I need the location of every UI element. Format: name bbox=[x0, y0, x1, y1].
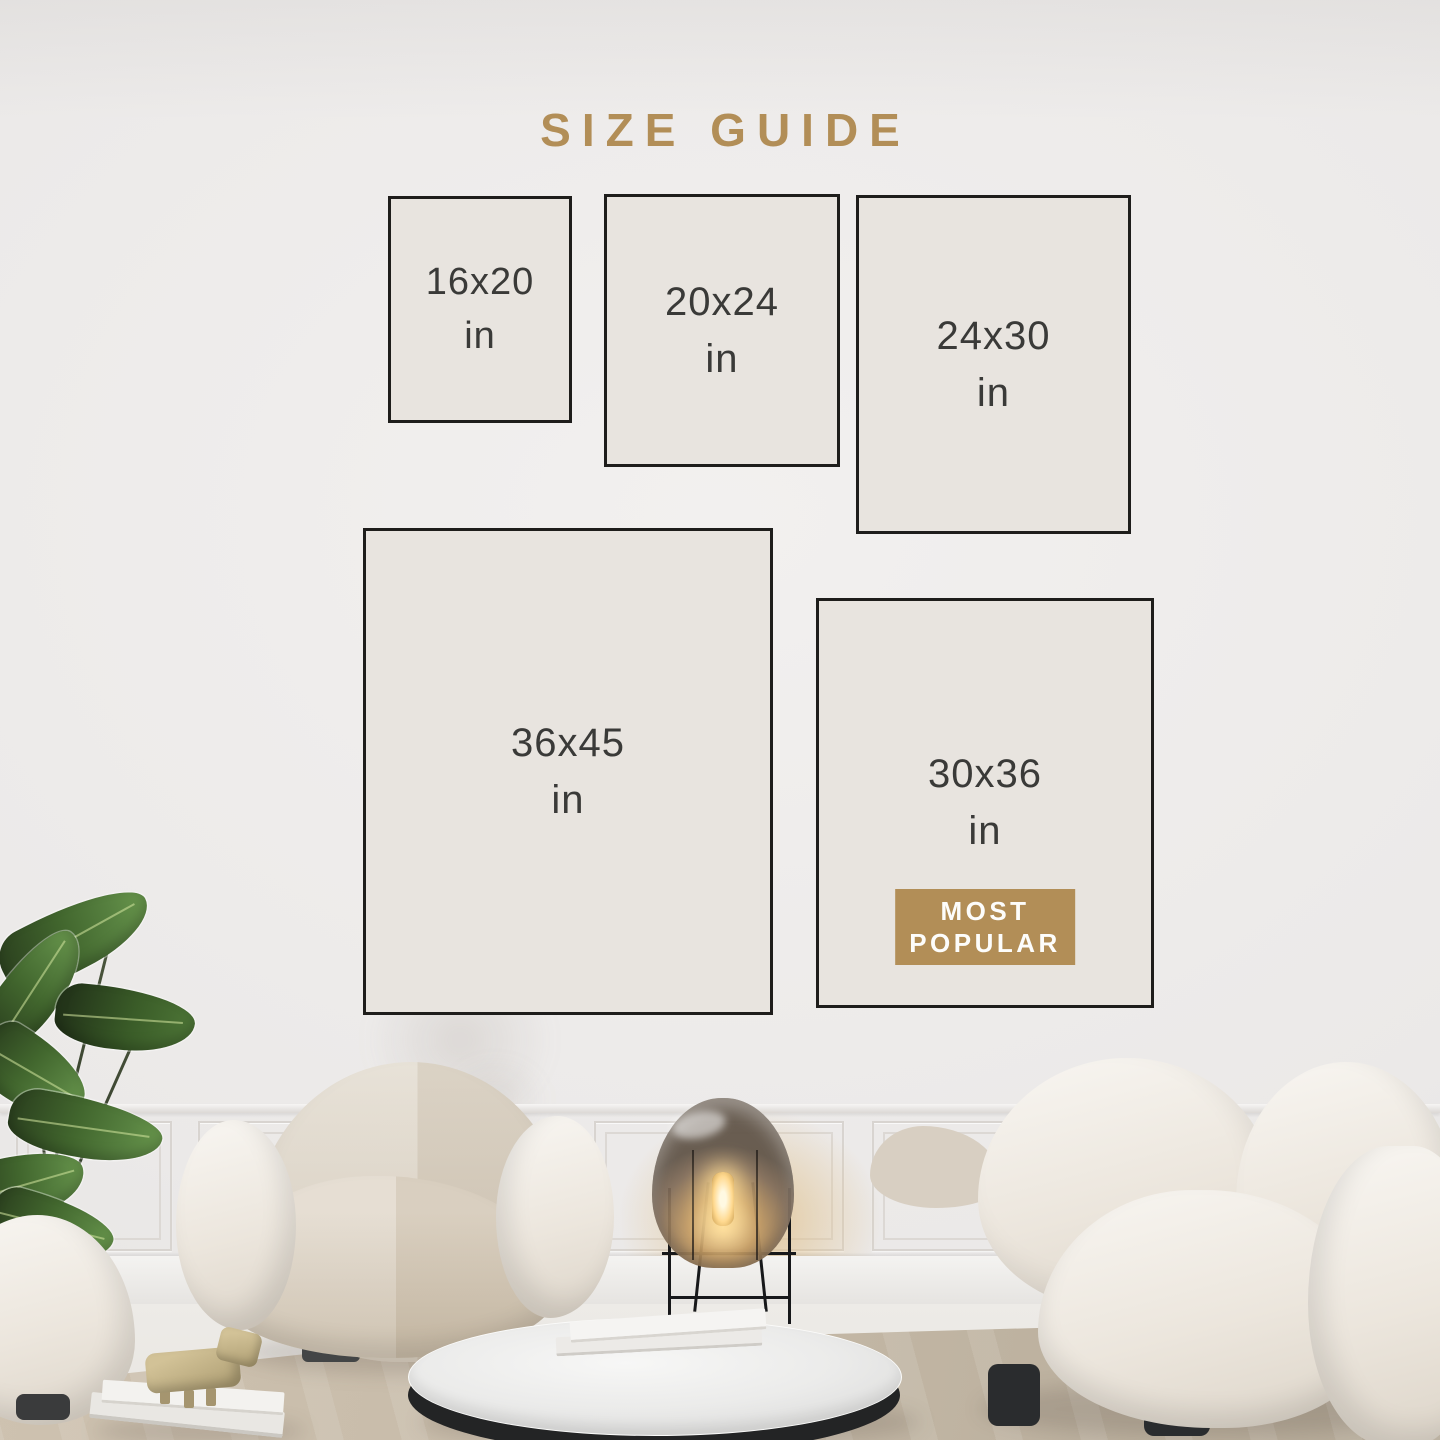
size-box-36x45: 36x45 in bbox=[363, 528, 773, 1015]
lamp-inner-rod bbox=[756, 1150, 758, 1260]
wooden-toy-leg bbox=[184, 1390, 194, 1408]
size-box-24x30: 24x30 in bbox=[856, 195, 1131, 534]
most-popular-badge: MOST POPULAR bbox=[895, 889, 1075, 965]
page-title: SIZE GUIDE bbox=[0, 103, 1440, 157]
sofa-foot bbox=[988, 1364, 1040, 1426]
wooden-toy-leg bbox=[206, 1388, 216, 1406]
armchair-arm bbox=[176, 1120, 296, 1330]
pouf-foot bbox=[16, 1394, 70, 1420]
size-label: 24x30 bbox=[937, 308, 1051, 365]
size-unit: in bbox=[968, 803, 1001, 860]
wall-top-shade bbox=[0, 0, 1440, 120]
size-unit: in bbox=[977, 365, 1010, 422]
lamp-bulb bbox=[712, 1172, 734, 1226]
size-unit: in bbox=[551, 772, 584, 829]
badge-line-2: POPULAR bbox=[909, 927, 1061, 959]
size-guide-image: SIZE GUIDE 16x20 in 20x24 in 24x30 in 36… bbox=[0, 0, 1440, 1440]
badge-line-1: MOST bbox=[909, 895, 1061, 927]
size-label: 36x45 bbox=[511, 715, 625, 772]
size-unit: in bbox=[705, 331, 738, 388]
size-label: 30x36 bbox=[928, 746, 1042, 803]
size-unit: in bbox=[464, 310, 496, 364]
size-box-16x20: 16x20 in bbox=[388, 196, 572, 423]
lamp-crossbar bbox=[668, 1296, 790, 1299]
size-box-20x24: 20x24 in bbox=[604, 194, 840, 467]
lamp-inner-rod bbox=[692, 1150, 694, 1260]
size-label: 20x24 bbox=[665, 274, 779, 331]
size-label: 16x20 bbox=[426, 256, 535, 310]
size-box-30x36: 30x36 in MOST POPULAR bbox=[816, 598, 1154, 1008]
